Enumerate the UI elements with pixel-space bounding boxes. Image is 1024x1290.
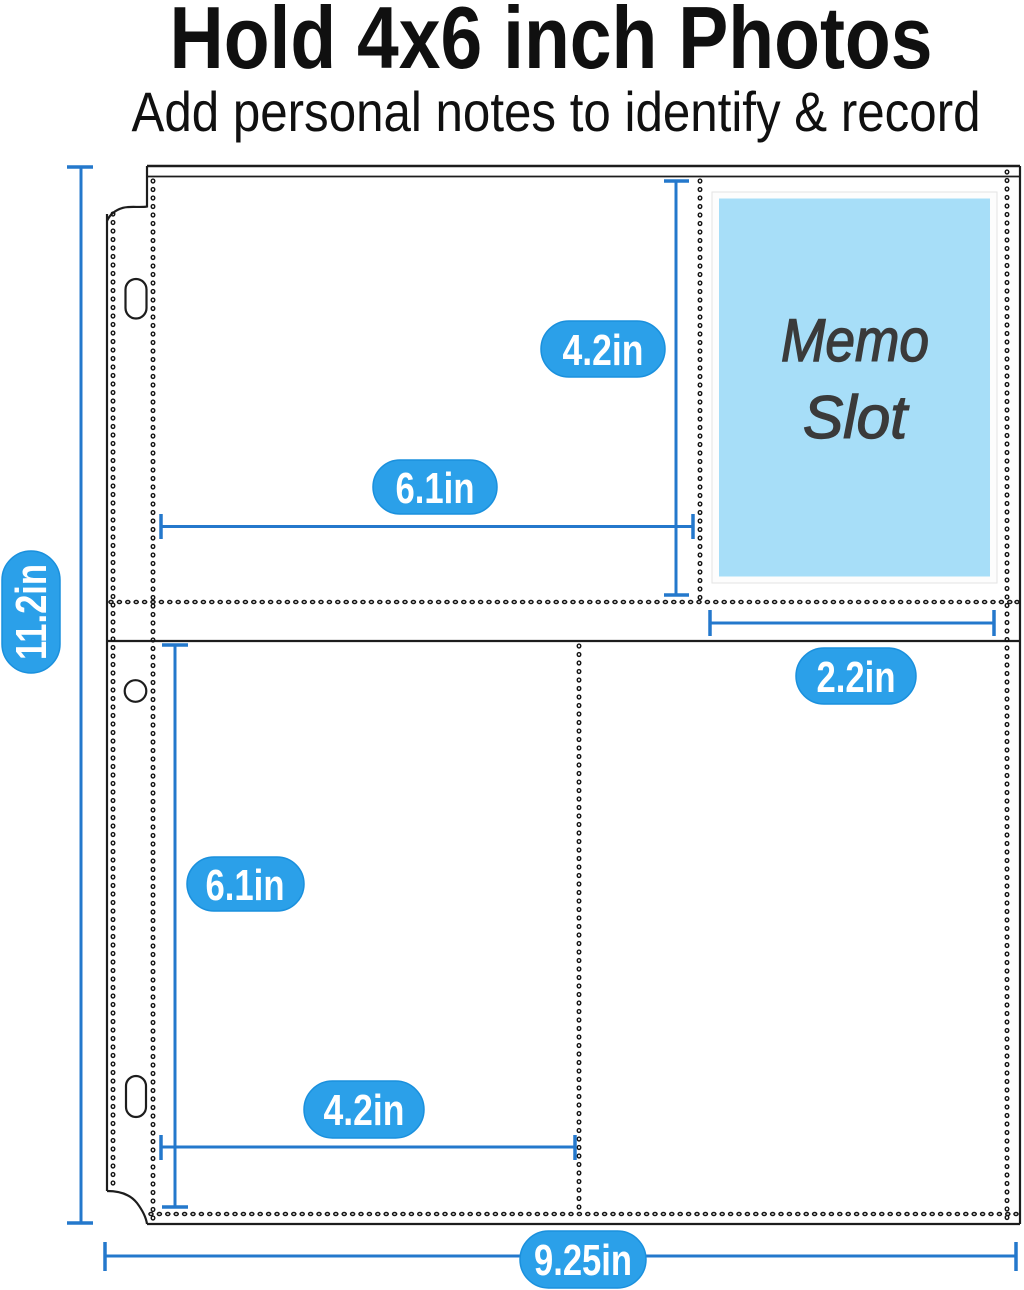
svg-text:9.25in: 9.25in <box>534 1236 632 1285</box>
svg-text:Memo: Memo <box>781 307 929 374</box>
svg-text:Hold 4x6 inch Photos: Hold 4x6 inch Photos <box>170 0 933 87</box>
svg-text:6.1in: 6.1in <box>206 861 285 910</box>
svg-text:6.1in: 6.1in <box>396 464 475 513</box>
svg-text:4.2in: 4.2in <box>563 326 644 375</box>
svg-text:Add personal notes to identify: Add personal notes to identify & record <box>132 80 981 143</box>
svg-text:2.2in: 2.2in <box>817 653 896 702</box>
svg-text:Slot: Slot <box>803 384 909 451</box>
svg-text:11.2in: 11.2in <box>7 564 56 660</box>
svg-text:4.2in: 4.2in <box>324 1086 405 1135</box>
